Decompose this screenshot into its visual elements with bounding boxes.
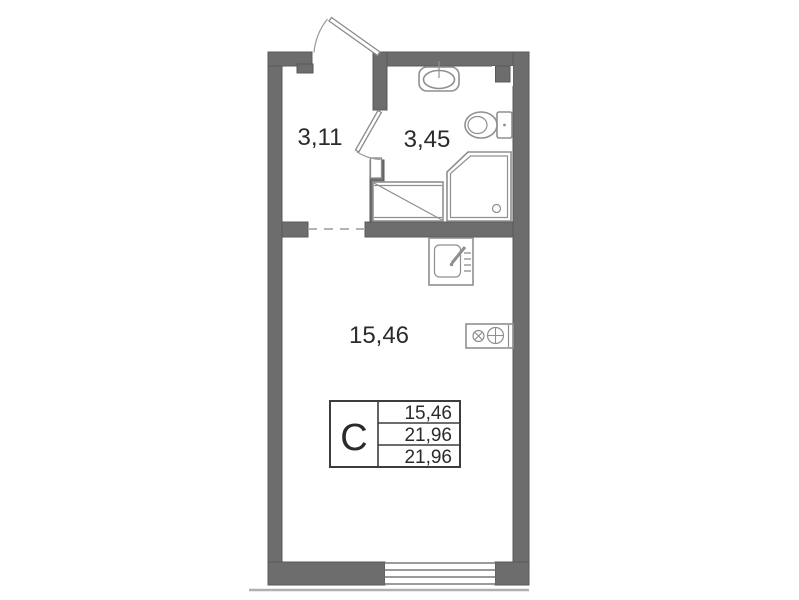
stove-icon [466,324,513,348]
entrance-door-icon [314,18,380,56]
entrance-door-swing-arc [314,19,328,53]
legend-table: С 15,46 21,96 21,96 [330,401,460,468]
interior-door-leaf [356,111,382,153]
living-room-area-label: 15,46 [349,322,409,349]
floor-plan-page: 3,11 3,45 15,46 С 15,46 21,96 21,96 [0,0,799,600]
floor-plan-canvas: 3,11 3,45 15,46 С 15,46 21,96 21,96 [0,0,799,600]
wall-bottom-left [268,562,385,585]
legend-total-area: 21,96 [404,447,452,468]
wall-bathroom-bottom [365,222,513,237]
interior-door-jamb [371,158,382,178]
toilet-bowl [465,112,497,138]
window-icon [385,562,495,585]
hallway-area-label: 3,11 [298,124,343,151]
kitchen-sink-icon [429,238,473,285]
legend-living-area: 15,46 [404,403,452,424]
toilet-button [503,124,506,127]
window-opening [385,562,495,585]
entrance-door-leaf [329,18,380,56]
wall-bottom-right [495,562,529,585]
legend-unit-type: С [340,417,367,459]
shower-icon [447,152,511,221]
toilet-icon [465,112,512,138]
shower-tray [447,152,511,221]
wall-hallway-stub [282,222,308,237]
kitchen-sink-drop [450,263,454,267]
washing-machine-icon [373,182,443,221]
legend-apartment-area: 21,96 [404,425,452,446]
vent-shaft-icon [496,66,511,82]
wall-right [513,52,529,585]
wall-left [268,52,282,585]
interior-door-icon [356,111,382,179]
wall-divider-upper [373,52,387,110]
entrance-jamb-step [297,64,313,73]
wall-top-right [377,52,529,66]
bathroom-area-label: 3,45 [404,126,451,153]
